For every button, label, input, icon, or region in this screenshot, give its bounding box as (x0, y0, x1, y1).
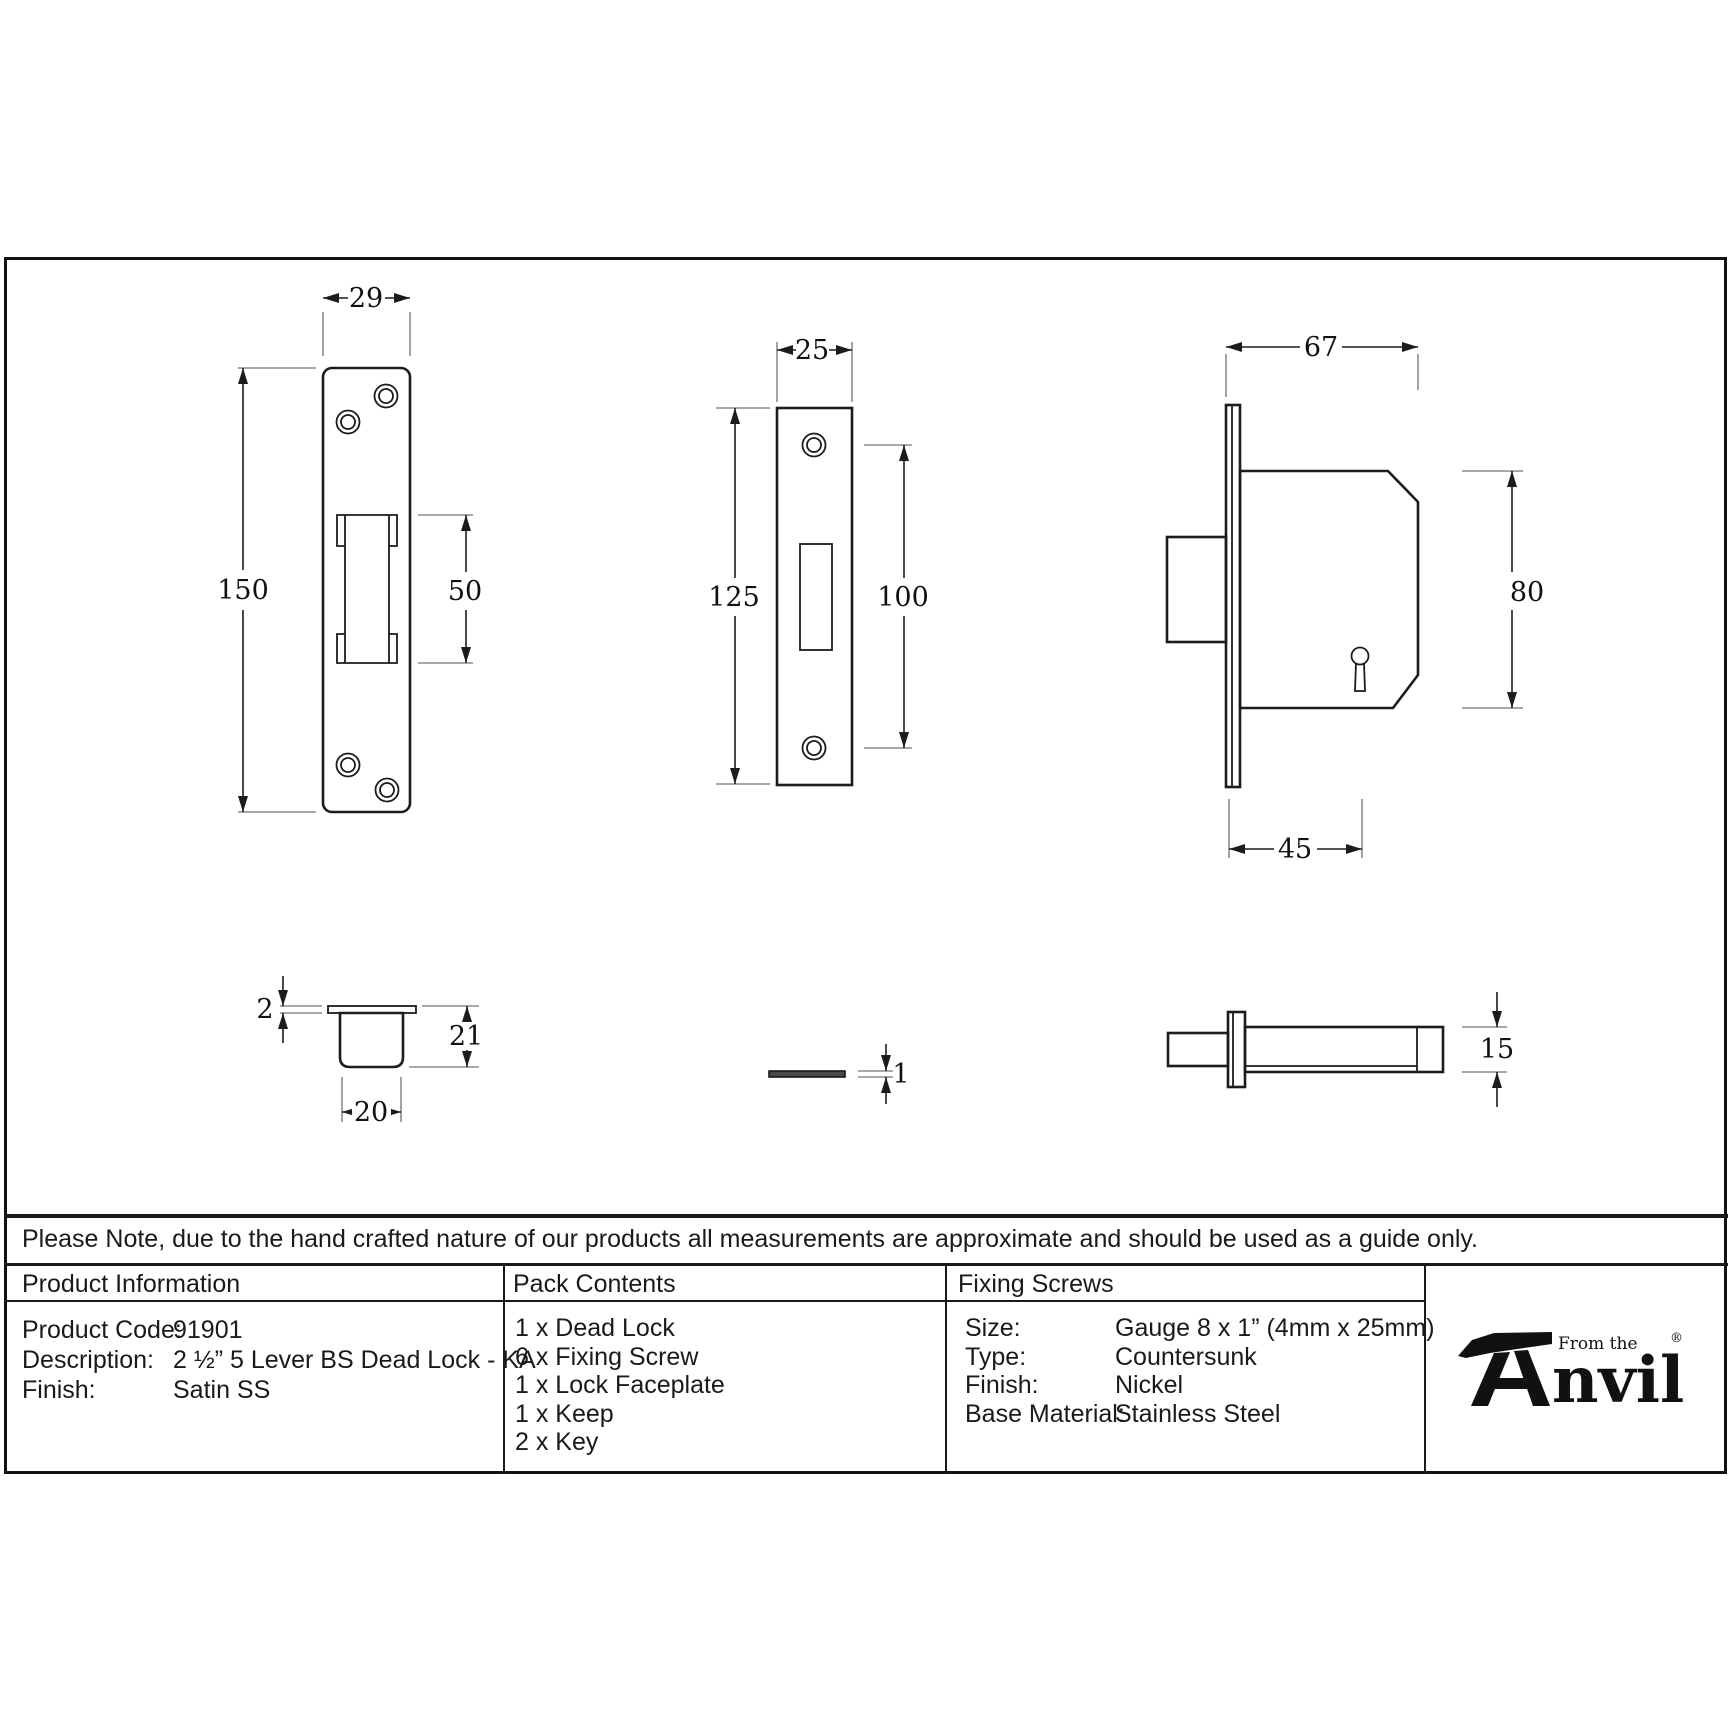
pack-item: 1 x Dead Lock (515, 1314, 675, 1343)
finish-label: Finish: (22, 1376, 96, 1405)
screw-type-label: Type: (965, 1343, 1026, 1372)
screw-size-label: Size: (965, 1314, 1021, 1343)
registered-trademark-icon: ® (1670, 1331, 1683, 1346)
table-top-divider (4, 1263, 1728, 1266)
measurement-note: Please Note, due to the hand crafted nat… (22, 1225, 1478, 1254)
screw-type-value: Countersunk (1115, 1343, 1257, 1372)
screw-finish-value: Nickel (1115, 1371, 1183, 1400)
screw-size-value: Gauge 8 x 1” (4mm x 25mm) (1115, 1314, 1435, 1343)
pack-item: 2 x Key (515, 1428, 598, 1457)
screw-material-label: Base Material: (965, 1400, 1125, 1429)
product-code-label: Product Code: (22, 1316, 182, 1345)
anvil-icon (1458, 1332, 1552, 1406)
finish-value: Satin SS (173, 1376, 270, 1405)
column-divider (945, 1263, 947, 1474)
pack-item: 1 x Lock Faceplate (515, 1371, 725, 1400)
pack-contents-header: Pack Contents (513, 1270, 676, 1299)
from-the-anvil-logo: From the nvil ® (1458, 1328, 1698, 1408)
screw-finish-label: Finish: (965, 1371, 1039, 1400)
product-information-header: Product Information (22, 1270, 240, 1299)
description-label: Description: (22, 1346, 154, 1375)
logo-brand-text: nvil (1552, 1343, 1684, 1408)
note-row-divider (4, 1214, 1728, 1218)
header-row-divider (4, 1300, 1424, 1302)
spec-sheet: 29 150 50 25 125 (0, 0, 1735, 1735)
fixing-screws-header: Fixing Screws (958, 1270, 1114, 1299)
pack-item: 6 x Fixing Screw (515, 1343, 698, 1372)
column-divider (1424, 1263, 1426, 1474)
description-value: 2 ½” 5 Lever BS Dead Lock - KA (173, 1346, 536, 1375)
screw-material-value: Stainless Steel (1115, 1400, 1280, 1429)
pack-item: 1 x Keep (515, 1400, 614, 1429)
product-code-value: 91901 (173, 1316, 243, 1345)
sheet-border (4, 257, 1727, 1474)
